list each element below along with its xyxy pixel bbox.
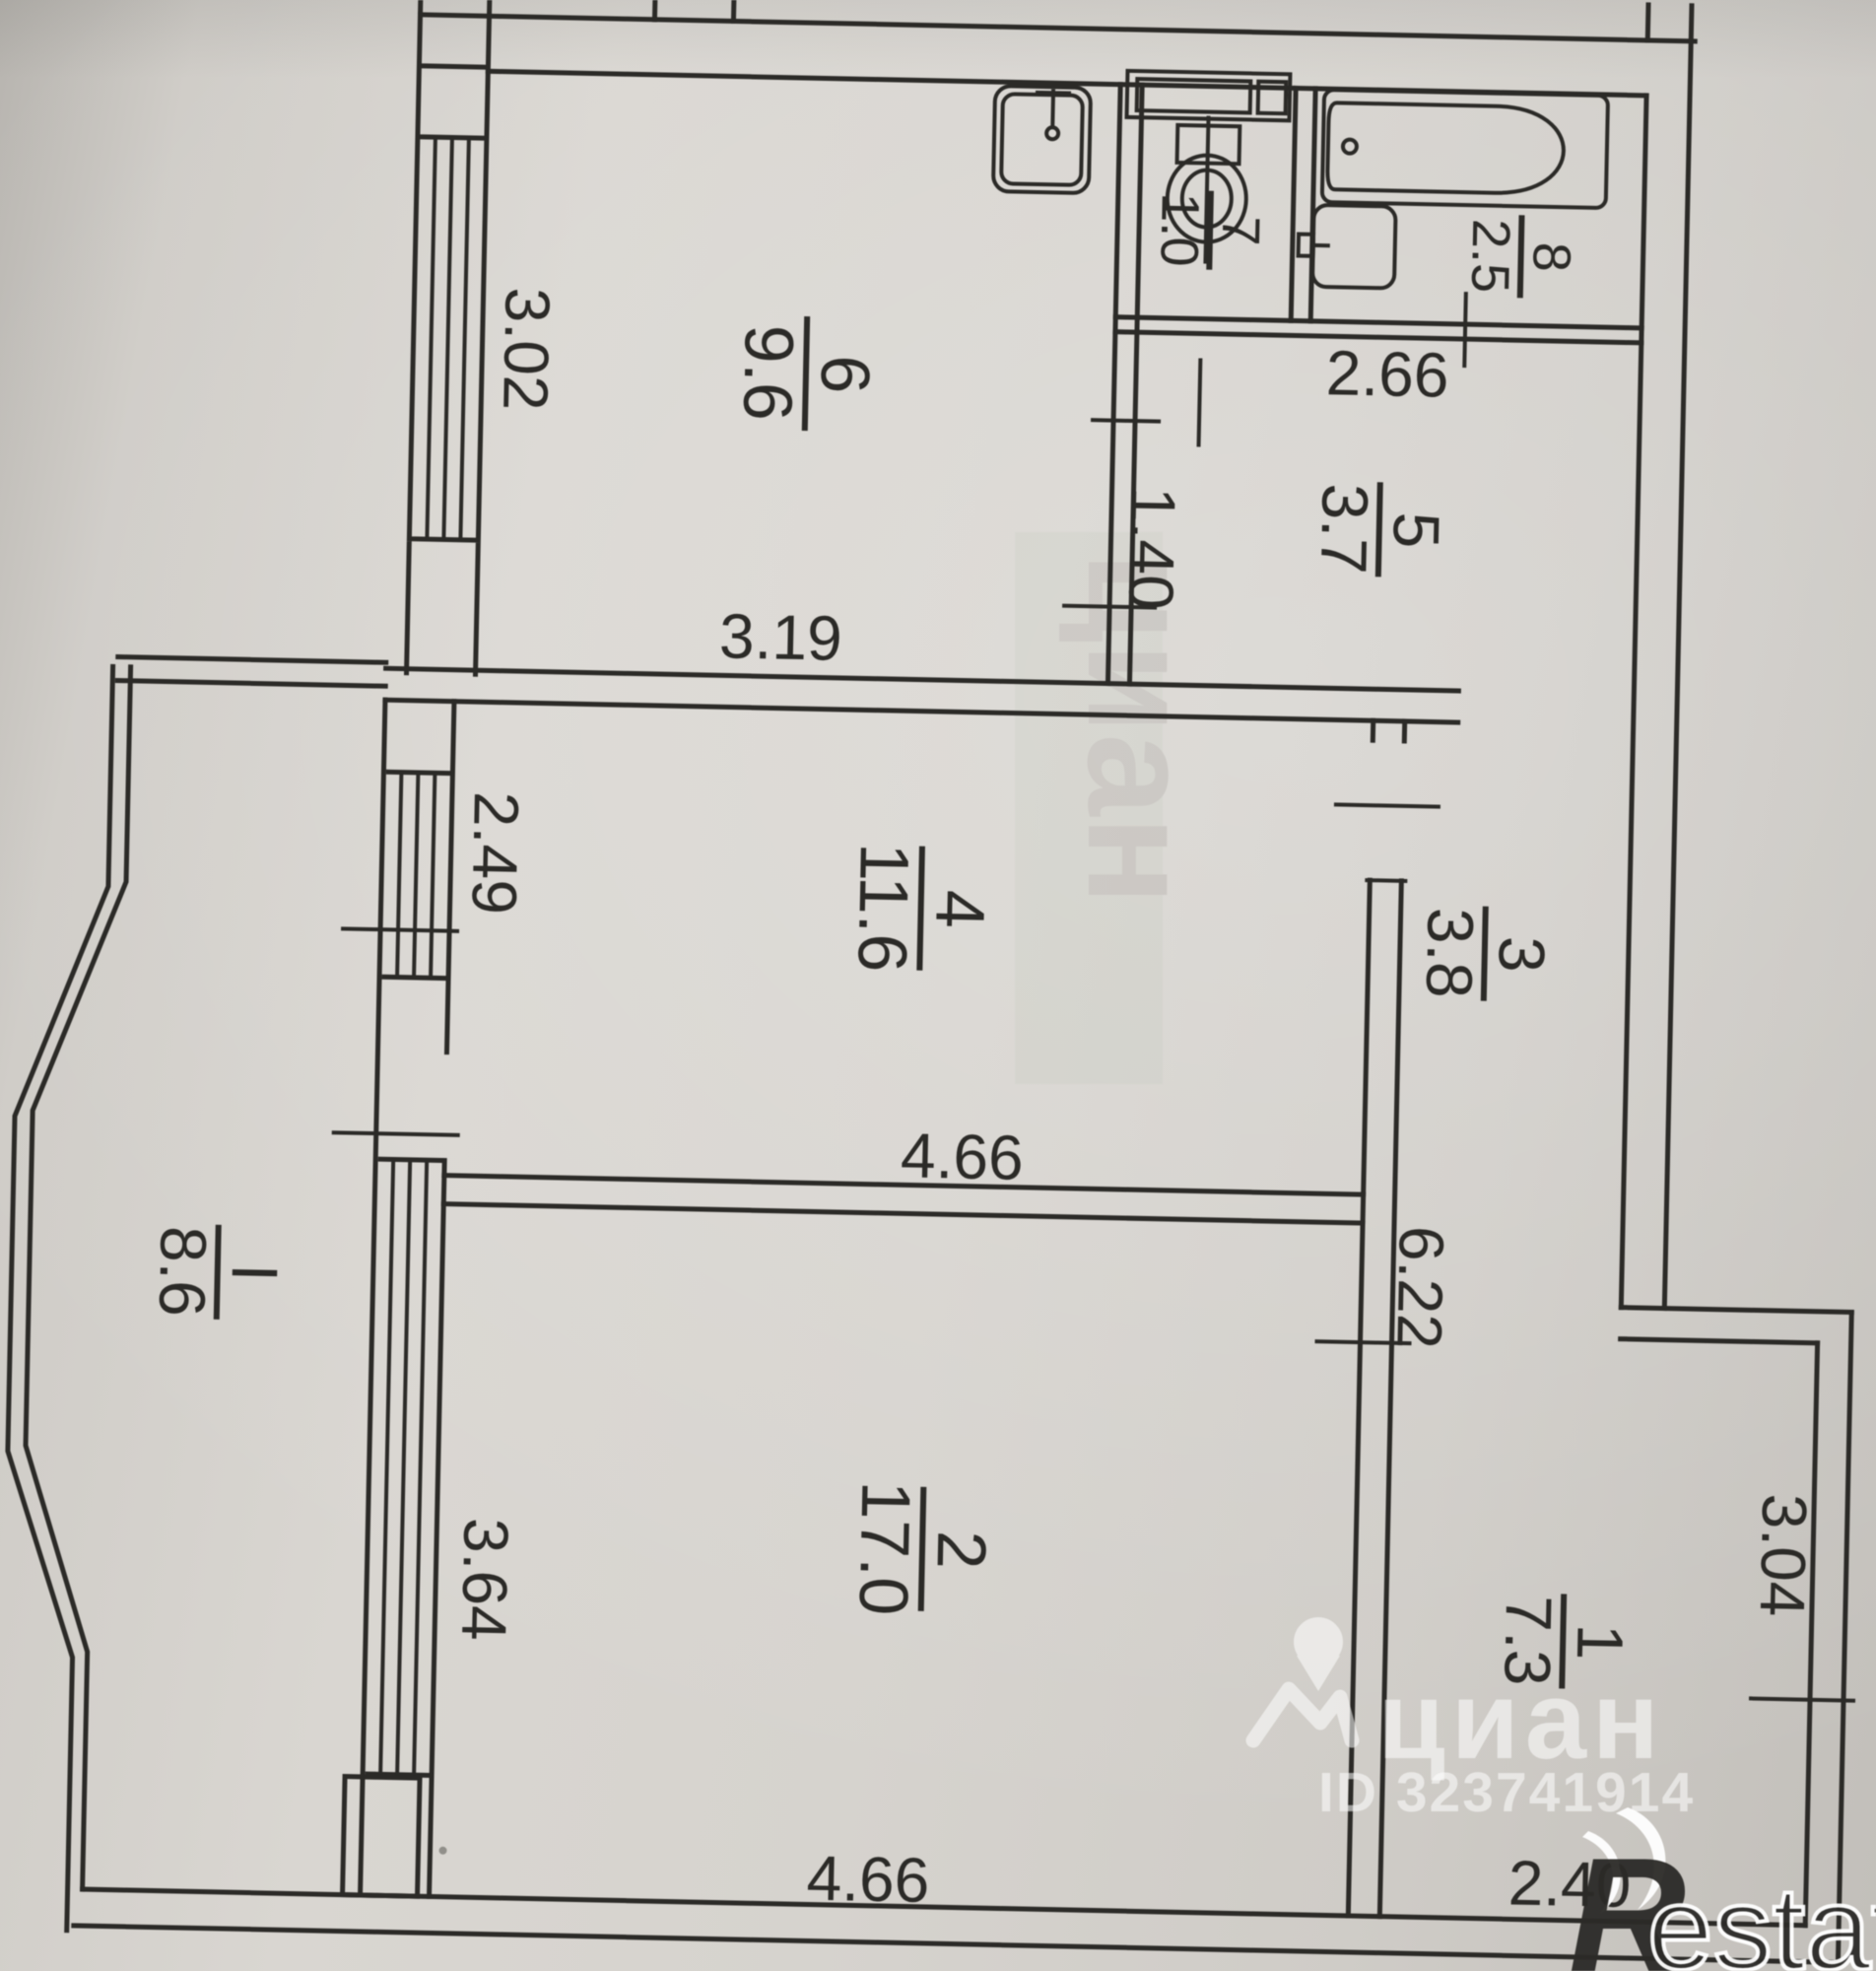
bathtub	[1322, 90, 1608, 208]
room-number: 5	[1379, 511, 1453, 549]
dim-long-wall: 6.22	[1383, 1225, 1457, 1349]
window-hatch-kitchen	[427, 137, 469, 540]
dim-room2-depth: 3.64	[448, 1518, 522, 1642]
restate-suffix: estate	[1647, 1863, 1876, 1971]
dim-hall-by-wc: 1.40	[1115, 486, 1189, 610]
room-number: 3	[1485, 935, 1559, 973]
room-label-hall5: 5 3.7	[1307, 481, 1454, 578]
room-number: I	[219, 1263, 292, 1283]
room-label-wc: 7 1.0	[1149, 189, 1271, 271]
dim-sanitary-width: 2.66	[1325, 337, 1449, 411]
restate-watermark: R estate	[1569, 1807, 1876, 1971]
room-label-loggia: I 8.6	[146, 1223, 293, 1321]
location-pin-icon	[1294, 1617, 1343, 1691]
cian-mountain-icon	[1253, 1689, 1352, 1740]
room-label-kitchen: 6 9.6	[729, 314, 885, 432]
room-area: 17.0	[845, 1480, 925, 1616]
room-number: 7	[1211, 216, 1271, 246]
window-hatch-room4	[397, 773, 435, 979]
dim-room4-depth: 2.49	[458, 791, 532, 916]
window-hatch-room2	[380, 1160, 427, 1776]
kitchen-sink	[993, 86, 1091, 193]
faint-watermark-band: циан	[1015, 532, 1223, 1084]
room-number: 1	[1564, 1623, 1638, 1661]
room-number: 6	[807, 355, 885, 395]
dust-speck	[438, 1847, 446, 1855]
room-area: 3.7	[1307, 483, 1382, 575]
room-area: 2.5	[1460, 218, 1521, 293]
ventilation-shaft	[1126, 71, 1290, 120]
room-area: 9.6	[729, 324, 808, 422]
room-label-corridor: 3 3.8	[1413, 905, 1560, 1002]
room-area: 3.8	[1413, 907, 1488, 998]
dim-kitchen-width: 3.19	[718, 600, 842, 674]
washbasin	[1298, 205, 1396, 289]
room-area: 1.0	[1149, 192, 1210, 267]
dim-room4-width: 4.66	[900, 1120, 1024, 1193]
room-number: 8	[1521, 241, 1581, 272]
floorplan-photo: циан	[0, 0, 1876, 1971]
room-label-bathroom: 8 2.5	[1460, 214, 1582, 300]
room-number: 4	[921, 889, 999, 929]
room-area: 11.6	[843, 843, 923, 974]
dim-room2-width: 4.66	[806, 1842, 930, 1916]
room-label-room4: 4 11.6	[843, 843, 1000, 975]
room-area: 8.6	[146, 1225, 221, 1317]
room-label-room2: 2 17.0	[845, 1480, 1002, 1617]
dim-room1-depth: 3.04	[1747, 1493, 1821, 1617]
floorplan-drawing: циан	[0, 0, 1876, 1971]
room-number: 2	[923, 1529, 1001, 1570]
dim-kitchen-window: 3.02	[490, 287, 564, 411]
